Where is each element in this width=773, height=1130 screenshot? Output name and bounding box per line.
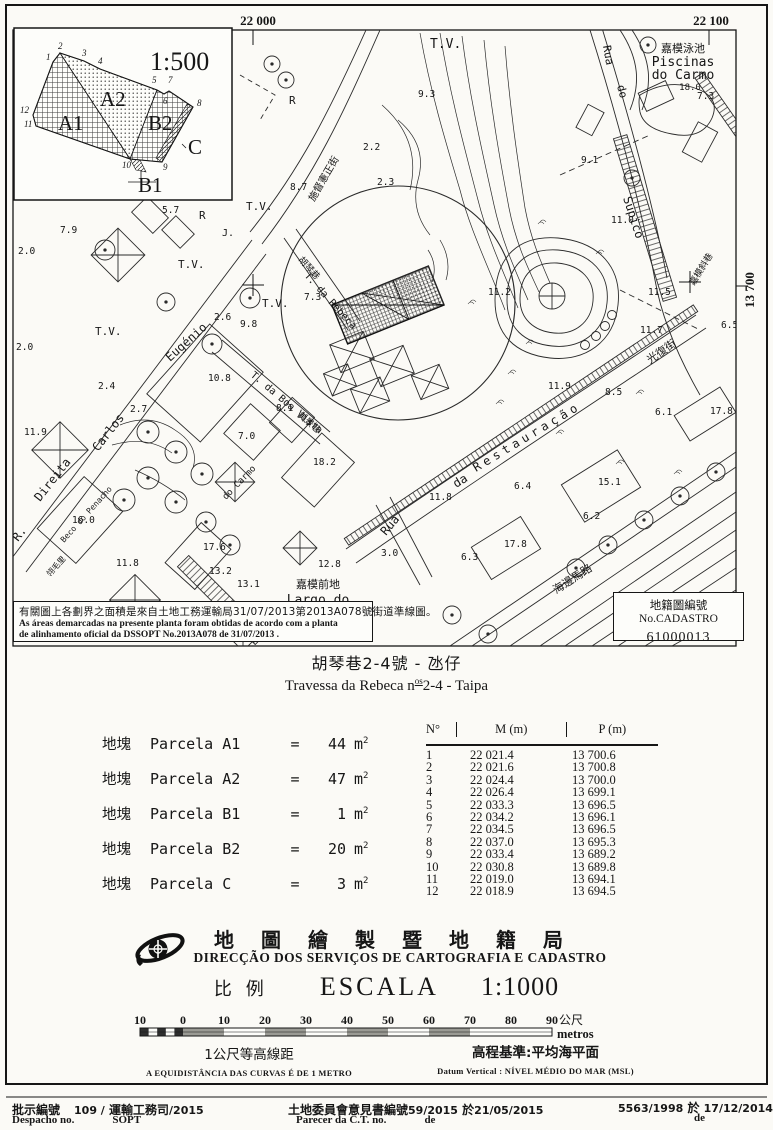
spot-height: 11.8	[429, 492, 452, 503]
spot-height: 6.3	[461, 552, 478, 563]
spot-height: 7.3	[697, 91, 714, 102]
spot-height: 13.2	[209, 566, 232, 577]
contour-note: 1公尺等高線距 A EQUIDISTÂNCIA DAS CURVAS É DE …	[130, 1043, 368, 1078]
grid-m-22000: 22 000	[240, 13, 276, 28]
coordinate-cell-n: 2	[426, 761, 456, 773]
scalebar-tick: 40	[341, 1013, 353, 1027]
spot-height: 8.5	[605, 387, 622, 398]
spot-height: 12.8	[318, 559, 341, 570]
plan-title-pt: Travessa da Rebeca nos2-4 - Taipa	[0, 676, 773, 695]
despacho-dept-pt: SOPT	[112, 1114, 141, 1126]
coordinate-row: 422 026.413 699.1	[426, 786, 658, 798]
note-zh: 有關圖上各劃界之面積是來自土地工務運輸局31/07/2013第2013A078號…	[19, 604, 367, 619]
spot-height: 11.9	[548, 381, 571, 392]
scalebar-unit-zh: 公尺	[559, 1013, 583, 1027]
spot-height: 9.3	[418, 89, 435, 100]
plan-title-zh: 胡琴巷2-4號 - 氹仔	[0, 650, 773, 674]
coordinate-row: 822 037.013 695.3	[426, 836, 658, 848]
inset-label: 11	[24, 119, 32, 129]
parcel-name: Parcela A1	[150, 735, 278, 753]
equals-sign: =	[278, 770, 312, 788]
coordinate-row: 522 033.313 696.5	[426, 799, 658, 811]
spot-height: 7.0	[238, 431, 255, 442]
spot-height: 9.1	[581, 155, 598, 166]
note-pt-line1: As áreas demarcadas na presente planta f…	[19, 619, 367, 630]
parcel-label-c: C	[188, 135, 202, 159]
scalebar-tick: 20	[259, 1013, 271, 1027]
inset-label: 10	[122, 160, 132, 170]
parcel-area: 3	[312, 875, 346, 893]
parcel-area: 1	[312, 805, 346, 823]
spot-height: 11.8	[116, 558, 139, 569]
spot-height: 11.0	[611, 215, 634, 226]
street-label: J.	[222, 228, 234, 239]
parcel-name: Parcela A2	[150, 770, 278, 788]
cadastral-plan-sheet: 22 000 22 100 13 700	[0, 0, 773, 1130]
coordinate-cell-n: 9	[426, 848, 456, 860]
spot-height: 18.2	[313, 457, 336, 468]
parecer-line-pt: Parecer da C.T. no.de	[296, 1114, 435, 1126]
street-label: 翎毛里	[44, 554, 67, 579]
scalebar-tick: 10	[134, 1013, 146, 1027]
datum-note: 高程基準:平均海平面 Datum Vertical : NÍVEL MÉDIO …	[408, 1041, 663, 1076]
parcel-area-list: 地塊Parcela A1=44m2地塊Parcela A2=47m2地塊Parc…	[102, 733, 388, 908]
parcel-label-zh: 地塊	[102, 838, 150, 859]
coordinate-table-header: N° M (m) P (m)	[426, 722, 658, 746]
contour-note-zh: 1公尺等高線距	[130, 1043, 368, 1063]
street-label: T.V.	[430, 37, 461, 52]
equals-sign: =	[278, 735, 312, 753]
spot-height: 17.8	[504, 539, 527, 550]
spot-height: 13.1	[237, 579, 260, 590]
coordinate-table: N° M (m) P (m) 122 021.413 700.6222 021.…	[426, 722, 658, 898]
coordinate-row: 222 021.613 700.8	[426, 761, 658, 773]
carmo-garden-complex	[495, 238, 618, 359]
street-label: 嘉模泳池	[661, 41, 705, 55]
coordinate-cell-n: 4	[426, 786, 456, 798]
spot-height: 17.8	[710, 406, 733, 417]
parcel-row: 地塊Parcela B1= 1m2	[102, 803, 388, 838]
coordinate-cell-m: 22 033.4	[456, 848, 566, 860]
inset-diagram: 1:500A1A2B2B1C123457681211109	[14, 28, 232, 200]
note-pt-line2: de alinhamento oficial da DSSOPT No.2013…	[19, 630, 367, 641]
street-label: Restauração	[470, 399, 583, 475]
parcel-row: 地塊Parcela A2=47m2	[102, 768, 388, 803]
scalebar-tick: 0	[180, 1013, 186, 1027]
street-label: Carlos	[89, 411, 127, 454]
coordinate-cell-p: 13 700.8	[566, 761, 658, 773]
parcel-row: 地塊Parcela C= 3m2	[102, 873, 388, 908]
scalebar-tick: 60	[423, 1013, 435, 1027]
street-label: R	[199, 209, 206, 222]
scalebar-tick: 70	[464, 1013, 476, 1027]
spot-height: 6.2	[583, 511, 600, 522]
parecer-at: 於	[462, 1103, 474, 1117]
parcel-label-a2: A2	[100, 87, 126, 111]
plan-title: 胡琴巷2-4號 - 氹仔 Travessa da Rebeca nos2-4 -…	[0, 650, 773, 695]
parcel-area: 44	[312, 735, 346, 753]
plan-title-pt-suffix: 2-4 - Taipa	[423, 678, 488, 694]
parcel-row: 地塊Parcela B2=20m2	[102, 838, 388, 873]
street-label: do Carmo	[221, 464, 258, 502]
inset-label: 2	[58, 41, 63, 51]
equals-sign: =	[278, 805, 312, 823]
parcel-label-zh: 地塊	[102, 733, 150, 754]
coordinate-table-rows: 122 021.413 700.6222 021.613 700.8322 02…	[426, 749, 658, 898]
spot-height: 11.2	[488, 287, 511, 298]
parcel-name: Parcela B1	[150, 805, 278, 823]
inset-label: 1	[46, 52, 51, 62]
parcel-label-zh: 地塊	[102, 803, 150, 824]
spot-height: 2.2	[363, 142, 380, 153]
spot-height: 8.7	[290, 182, 307, 193]
coordinate-row: 122 021.413 700.6	[426, 749, 658, 761]
parcel-unit: m2	[346, 805, 388, 823]
street-label: 嘉模前地	[296, 577, 340, 591]
coordinate-cell-m: 22 018.9	[456, 885, 566, 897]
parcel-label-zh: 地塊	[102, 768, 150, 789]
coordinate-cell-n: 12	[426, 885, 456, 897]
coordinate-cell-m: 22 021.6	[456, 761, 566, 773]
spot-height: 15.1	[598, 477, 621, 488]
spot-height: 2.3	[377, 177, 394, 188]
street-label: R	[289, 94, 296, 107]
plan-title-pt-sup: os	[415, 676, 423, 686]
alignment-note-box: 有關圖上各劃界之面積是來自土地工務運輸局31/07/2013第2013A078號…	[13, 601, 373, 642]
street-label: Rua	[600, 44, 616, 66]
inset-label: 4	[98, 56, 103, 66]
parecer-label-pt: Parecer da C.T. no.	[296, 1114, 386, 1126]
spot-height: 17.6	[203, 542, 226, 553]
coordinate-row: 1222 018.913 694.5	[426, 885, 658, 897]
spot-height: 6.5	[721, 320, 738, 331]
contour-note-pt: A EQUIDISTÂNCIA DAS CURVAS É DE 1 METRO	[130, 1068, 368, 1078]
coordinate-cell-n: 7	[426, 823, 456, 835]
street-label: 施督憲正街	[305, 154, 341, 204]
coordinate-row: 1022 030.813 689.8	[426, 861, 658, 873]
street-label: R.	[9, 524, 29, 544]
ref-date: 17/12/2014	[704, 1102, 773, 1115]
coordinate-cell-m: 22 026.4	[456, 786, 566, 798]
spot-height: 10.8	[208, 373, 231, 384]
inset-label: 6	[163, 96, 168, 106]
col-header-m: M (m)	[456, 722, 566, 737]
agency-name-zh: 地圖繪製暨地籍局	[214, 924, 590, 953]
spot-height: 3.0	[381, 548, 398, 559]
cadastro-number: 61000013	[614, 630, 743, 646]
parcel-unit: m2	[346, 770, 388, 788]
coordinate-cell-m: 22 034.5	[456, 823, 566, 835]
ref-number: 5563/1998	[618, 1102, 683, 1115]
inset-label: 8	[197, 98, 202, 108]
spot-height: 2.7	[130, 404, 147, 415]
spot-height: 7.9	[60, 225, 77, 236]
street-label: T.V.	[262, 297, 289, 310]
scalebar-tick: 30	[300, 1013, 312, 1027]
spot-height: 2.0	[18, 246, 35, 257]
scale-statement: 比例 ESCALA 1:1000	[0, 972, 773, 1002]
parecer-date: 21/05/2015	[474, 1104, 543, 1117]
street-label: Direita	[31, 455, 73, 503]
inset-scale: 1:500	[150, 47, 209, 76]
parcel-area: 47	[312, 770, 346, 788]
parcel-unit: m2	[346, 875, 388, 893]
street-label: do	[614, 83, 630, 99]
spot-height: 8.1	[276, 403, 293, 414]
scalebar-unit-pt: metros	[557, 1027, 594, 1041]
datum-note-pt: Datum Vertical : NÍVEL MÉDIO DO MAR (MSL…	[408, 1066, 663, 1076]
spot-height: 5.7	[162, 205, 179, 216]
cadastro-title: 地籍圖編號 No.CADASTRO	[614, 597, 743, 625]
street-label: T.V.	[178, 258, 205, 271]
coordinate-row: 922 033.413 689.2	[426, 848, 658, 860]
spot-height: 11.9	[24, 427, 47, 438]
parcel-unit: m2	[346, 840, 388, 858]
scale-value: 1:1000	[481, 972, 559, 1002]
inset-label: 7	[168, 75, 173, 85]
spot-height: 7.3	[304, 292, 321, 303]
scalebar-tick: 10	[218, 1013, 230, 1027]
inset-label: 3	[81, 48, 87, 58]
grid-m-22100: 22 100	[693, 13, 729, 28]
coordinate-cell-p: 13 699.1	[566, 786, 658, 798]
spot-height: 2.0	[16, 342, 33, 353]
despacho-line-pt: Despacho no.SOPT	[12, 1114, 141, 1126]
grid-p-13700: 13 700	[742, 272, 757, 308]
parcel-label-zh: 地塊	[102, 873, 150, 894]
scalebar-tick: 50	[382, 1013, 394, 1027]
subject-parcel	[332, 266, 444, 344]
spot-height: 2.6	[214, 312, 231, 323]
spot-height: 9.8	[240, 319, 257, 330]
scale-label-pt: ESCALA	[320, 972, 439, 1002]
spot-height: 11.7	[640, 325, 663, 336]
spot-height: 16.0	[72, 515, 95, 526]
coordinate-row: 722 034.513 696.5	[426, 823, 658, 835]
col-header-p: P (m)	[566, 722, 658, 737]
spot-height: 11.5	[648, 287, 671, 298]
street-label: T.V.	[246, 200, 273, 213]
spot-height: 6.1	[655, 407, 672, 418]
agency-name-pt: DIRECÇÃO DOS SERVIÇOS DE CARTOGRAFIA E C…	[0, 950, 773, 966]
coordinate-cell-p: 13 696.5	[566, 823, 658, 835]
despacho-label-pt: Despacho no.	[12, 1114, 74, 1126]
scalebar-tick: 90	[546, 1013, 558, 1027]
inset-label: 9	[163, 162, 168, 172]
parcel-name: Parcela C	[150, 875, 278, 893]
spot-height: 2.4	[98, 381, 115, 392]
coordinate-cell-p: 13 694.5	[566, 885, 658, 897]
scale-label-zh: 比例	[214, 975, 278, 1001]
inset-label: 12	[20, 105, 30, 115]
inset-label: 5	[152, 75, 157, 85]
parcel-label-a1: A1	[58, 111, 84, 135]
coordinate-cell-p: 13 689.2	[566, 848, 658, 860]
coordinate-row: 1122 019.013 694.1	[426, 873, 658, 885]
parcel-name: Parcela B2	[150, 840, 278, 858]
parcel-row: 地塊Parcela A1=44m2	[102, 733, 388, 768]
parcel-label-b2: B2	[148, 111, 173, 135]
col-header-n: N°	[426, 722, 456, 737]
coordinate-row: 322 024.413 700.0	[426, 774, 658, 786]
street-label: T.V.	[95, 325, 122, 338]
scale-bar: 100102030405060708090公尺metros	[134, 1013, 594, 1041]
equals-sign: =	[278, 875, 312, 893]
parcel-unit: m2	[346, 735, 388, 753]
plan-title-pt-prefix: Travessa da Rebeca n	[285, 678, 415, 694]
scalebar-tick: 80	[505, 1013, 517, 1027]
parecer-de: de	[424, 1114, 435, 1126]
coordinate-row: 622 034.213 696.1	[426, 811, 658, 823]
ref-de: de	[694, 1112, 705, 1124]
equals-sign: =	[278, 840, 312, 858]
parcel-label-b1: B1	[138, 173, 163, 197]
datum-note-zh: 高程基準:平均海平面	[408, 1041, 663, 1061]
street-label: do Carmo	[652, 68, 715, 83]
parcel-area: 20	[312, 840, 346, 858]
spot-height: 6.4	[514, 481, 531, 492]
street-label: 海邊馬路	[550, 561, 595, 597]
despacho-year: /2015	[169, 1104, 204, 1117]
cadastro-number-box: 地籍圖編號 No.CADASTRO 61000013	[613, 592, 744, 641]
